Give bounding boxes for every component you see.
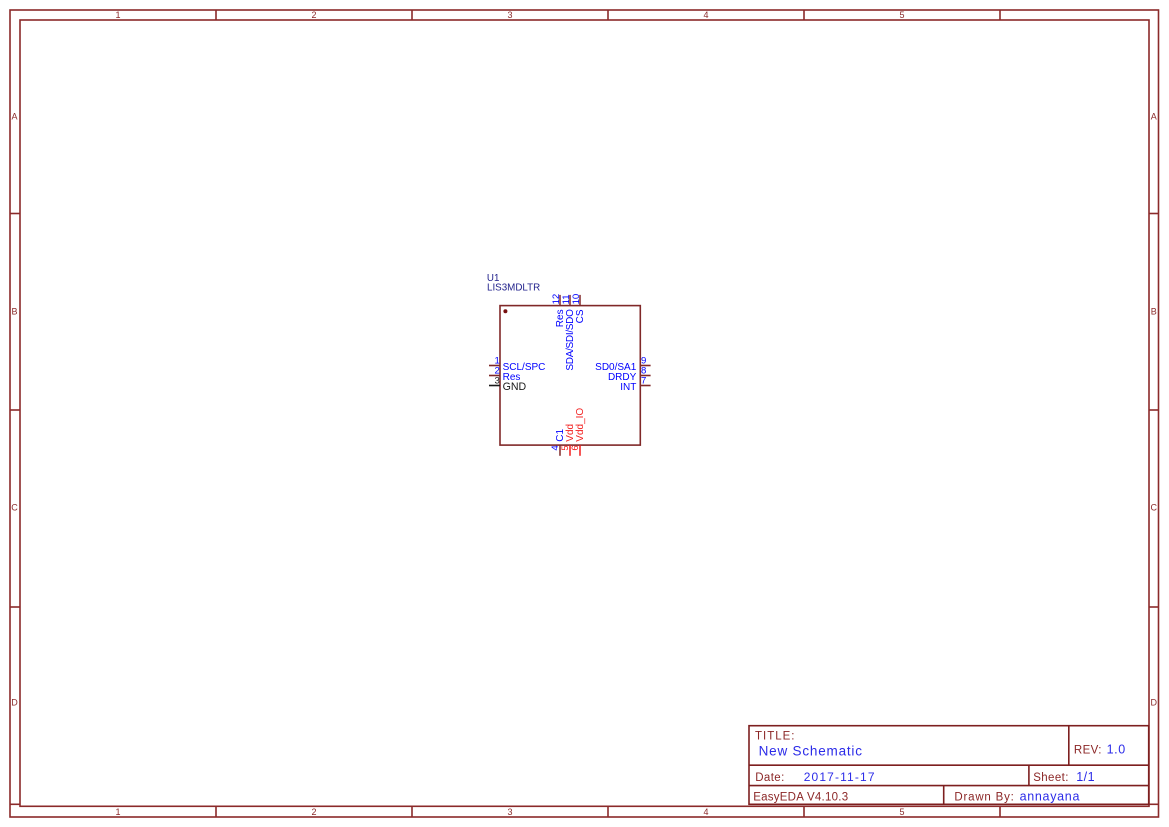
svg-text:4: 4 (703, 10, 708, 20)
svg-text:D: D (11, 698, 18, 708)
svg-text:EasyEDA V4.10.3: EasyEDA V4.10.3 (753, 791, 848, 803)
svg-text:7: 7 (641, 376, 646, 387)
svg-text:New Schematic: New Schematic (759, 744, 863, 759)
svg-text:1: 1 (115, 10, 120, 20)
svg-text:3: 3 (507, 807, 512, 817)
svg-text:4: 4 (703, 807, 708, 817)
svg-text:6: 6 (570, 445, 581, 450)
svg-text:C: C (11, 503, 18, 513)
svg-text:5: 5 (899, 10, 904, 20)
svg-text:5: 5 (899, 807, 904, 817)
svg-text:REV:: REV: (1074, 744, 1102, 756)
svg-text:A: A (1151, 111, 1157, 121)
svg-text:Drawn By:: Drawn By: (954, 791, 1014, 803)
svg-text:LIS3MDLTR: LIS3MDLTR (487, 283, 540, 294)
svg-text:D: D (1151, 698, 1158, 708)
svg-text:3: 3 (494, 376, 499, 387)
svg-text:1: 1 (115, 807, 120, 817)
svg-text:2017-11-17: 2017-11-17 (804, 770, 876, 784)
svg-text:A: A (11, 111, 17, 121)
svg-text:3: 3 (507, 10, 512, 20)
svg-text:Vdd_IO: Vdd_IO (575, 408, 586, 442)
svg-text:2: 2 (311, 807, 316, 817)
svg-text:annayana: annayana (1020, 789, 1081, 803)
svg-text:C: C (1151, 503, 1158, 513)
svg-text:Sheet:: Sheet: (1033, 772, 1069, 784)
svg-text:CS: CS (575, 309, 586, 323)
svg-text:2: 2 (311, 10, 316, 20)
svg-text:Date:: Date: (755, 772, 785, 784)
svg-text:B: B (11, 306, 17, 316)
svg-text:GND: GND (503, 381, 527, 393)
svg-text:INT: INT (620, 382, 636, 393)
svg-text:1.0: 1.0 (1107, 742, 1126, 756)
svg-text:B: B (1151, 306, 1157, 316)
svg-text:10: 10 (571, 294, 582, 305)
svg-text:TITLE:: TITLE: (755, 730, 796, 742)
svg-text:1/1: 1/1 (1076, 770, 1095, 784)
